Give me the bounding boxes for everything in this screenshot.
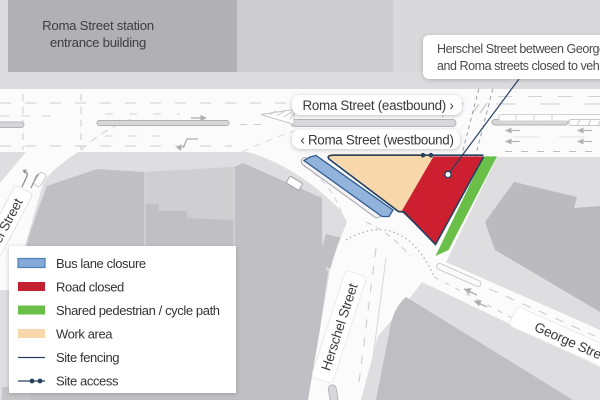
- svg-text:Roma Street (eastbound) ›: Roma Street (eastbound) ›: [302, 98, 453, 113]
- svg-text:Site access: Site access: [56, 374, 119, 389]
- svg-text:Herschel Street between George: Herschel Street between George: [437, 42, 600, 56]
- svg-text:‹ Roma Street (westbound): ‹ Roma Street (westbound): [300, 133, 453, 148]
- svg-text:and Roma streets closed to veh: and Roma streets closed to vehicles: [437, 59, 600, 73]
- svg-text:Bus lane closure: Bus lane closure: [56, 256, 146, 271]
- svg-text:entrance building: entrance building: [50, 35, 146, 50]
- svg-text:Roma Street station: Roma Street station: [42, 18, 154, 33]
- svg-text:Shared pedestrian / cycle path: Shared pedestrian / cycle path: [56, 303, 220, 318]
- svg-text:Road closed: Road closed: [56, 280, 124, 295]
- svg-text:Site fencing: Site fencing: [56, 350, 119, 365]
- svg-text:Work area: Work area: [56, 327, 113, 342]
